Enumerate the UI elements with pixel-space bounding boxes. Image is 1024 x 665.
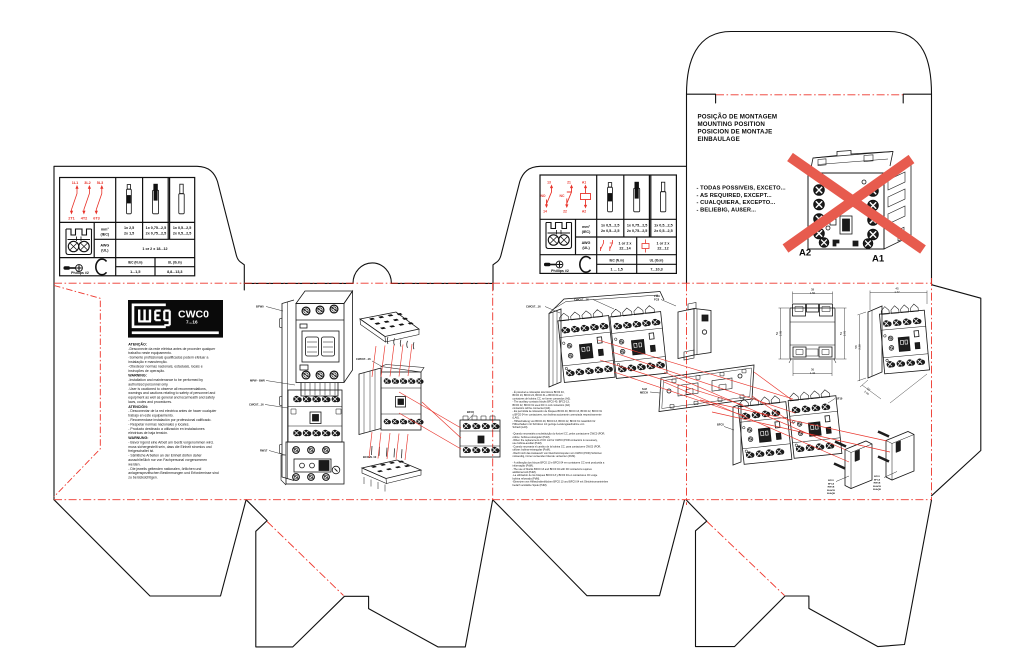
svg-text:5L3: 5L3: [97, 181, 104, 185]
svg-text:EINBAULAGE: EINBAULAGE: [698, 136, 740, 143]
svg-text:- CUALQUIERA, EXCEPTO...: - CUALQUIERA, EXCEPTO...: [697, 200, 776, 206]
svg-text:2x 1,5: 2x 1,5: [124, 232, 134, 236]
svg-text:2x 0,75...2,5: 2x 0,75...2,5: [627, 229, 648, 233]
svg-text:2.05: 2.05: [779, 330, 783, 336]
svg-text:WARNUNG:: WARNUNG:: [128, 436, 148, 440]
svg-text:zu berücksichtigen.: zu berücksichtigen.: [128, 476, 157, 480]
svg-text:2x 0,5...2,5: 2x 0,5...2,5: [601, 229, 619, 233]
svg-text:-Desconecte da rede elétrica a: -Desconecte da rede elétrica antes de pr…: [128, 347, 216, 351]
svg-text:(IEC): (IEC): [100, 233, 109, 237]
svg-text:instruções de operação.: instruções de operação.: [128, 369, 165, 373]
svg-text:- Bevor irgend eine Arbeit am: - Bevor irgend eine Arbeit am Gerät vorg…: [128, 440, 213, 444]
svg-text:1x 0,5...2,5: 1x 0,5...2,5: [601, 224, 619, 228]
svg-text:WARNING:: WARNING:: [128, 374, 147, 378]
svg-text:21: 21: [567, 181, 571, 185]
svg-text:ATENCIÓN:: ATENCIÓN:: [128, 404, 148, 409]
svg-text:IEC (N.m): IEC (N.m): [610, 259, 624, 263]
svg-text:51: 51: [839, 332, 843, 336]
svg-text:6T3: 6T3: [93, 216, 100, 220]
svg-text:BFC0: BFC0: [828, 480, 834, 482]
svg-text:3L2: 3L2: [84, 181, 91, 185]
svg-text:- Die jeweils geltenden nation: - Die jeweils geltenden nationalen, örtl…: [128, 467, 201, 471]
svg-text:POSICION DE MONTAJE: POSICION DE MONTAJE: [698, 129, 773, 136]
svg-text:CWC07...16: CWC07...16: [526, 305, 541, 309]
svg-text:werden.: werden.: [128, 462, 140, 466]
svg-text:- Sämtliche Arbeiten an der Ei: - Sämtliche Arbeiten an der Einheit dürf…: [128, 454, 202, 458]
svg-text:1 or 2 x 18...12: 1 or 2 x 18...12: [142, 247, 167, 251]
svg-text:(UL): (UL): [582, 246, 590, 250]
svg-text:A1: A1: [872, 254, 885, 265]
svg-text:POSIÇÃO DE MONTAGEM: POSIÇÃO DE MONTAGEM: [698, 114, 778, 121]
svg-text:BFCA: BFCA: [874, 478, 880, 481]
svg-text:(IEC): (IEC): [582, 230, 591, 234]
svg-text:45: 45: [895, 287, 899, 291]
svg-text:trabajo en este equipamiento.: trabajo en este equipamiento.: [128, 414, 173, 418]
svg-text:-Installation and maintenance: -Installation and maintenance to be perf…: [128, 378, 203, 382]
svg-text:1x 0,5...2,5: 1x 0,5...2,5: [173, 226, 191, 230]
svg-text:- TODAS POSSIVEIS, EXCETO...: - TODAS POSSIVEIS, EXCETO...: [697, 186, 787, 192]
svg-text:-Somente profissionais qualifi: -Somente profissionais qualificados pode…: [128, 356, 208, 360]
svg-text:Schadt (LA0).: Schadt (LA0).: [513, 425, 529, 429]
svg-text:laws, codes and procedures.: laws, codes and procedures.: [128, 400, 172, 404]
svg-text:1.77: 1.77: [894, 290, 900, 294]
svg-text:RW17: RW17: [260, 449, 268, 453]
svg-text:UL (lb.in): UL (lb.in): [168, 261, 182, 265]
svg-text:2.01: 2.01: [843, 330, 847, 336]
svg-text:authorized personnel only.: authorized personnel only.: [128, 382, 168, 386]
svg-text:1x 0,5...2,5: 1x 0,5...2,5: [654, 224, 672, 228]
svg-text:1.50: 1.50: [810, 291, 816, 295]
svg-text:CWC07...16: CWC07...16: [574, 298, 589, 302]
svg-text:1 ... 1,5: 1 ... 1,5: [611, 268, 623, 272]
svg-text:NC: NC: [560, 194, 565, 198]
svg-text:1x 0,75...2,5: 1x 0,75...2,5: [627, 224, 648, 228]
svg-text:MPW - BW0: MPW - BW0: [250, 379, 265, 383]
svg-text:1 or 2 x: 1 or 2 x: [619, 242, 633, 246]
svg-text:22...12: 22...12: [657, 247, 668, 251]
svg-text:mm²: mm²: [101, 228, 110, 232]
svg-text:-User is cautioned to observe: -User is cautioned to observe all recomm…: [128, 387, 206, 391]
svg-text:BFW0: BFW0: [256, 305, 264, 309]
svg-text:Phillips #2: Phillips #2: [551, 269, 569, 273]
svg-text:NO: NO: [540, 194, 545, 198]
svg-text:BFC0: BFC0: [874, 476, 880, 478]
svg-text:FWA: FWA: [654, 294, 660, 298]
svg-text:58: 58: [854, 345, 858, 349]
svg-text:14: 14: [543, 210, 547, 214]
svg-text:4T2: 4T2: [81, 216, 88, 220]
svg-text:BLACB: BLACB: [873, 485, 881, 488]
svg-text:- BELIEBIG, AUßER...: - BELIEBIG, AUßER...: [697, 207, 757, 213]
svg-text:anlagenspezifischen Bestimmung: anlagenspezifischen Bestimmungen und Erf…: [128, 471, 218, 475]
svg-text:CWC07...16: CWC07...16: [356, 357, 371, 361]
svg-text:2x 0,75...2,5: 2x 0,75...2,5: [146, 232, 167, 236]
svg-text:- AS REQUIRED, EXCEPT...: - AS REQUIRED, EXCEPT...: [697, 193, 773, 199]
svg-text:1...1,5: 1...1,5: [130, 270, 140, 274]
svg-text:2x 0,5...2,5: 2x 0,5...2,5: [654, 229, 672, 233]
svg-text:instalação e manutenção.: instalação e manutenção.: [128, 360, 167, 364]
svg-text:ATENÇÃO:: ATENÇÃO:: [128, 341, 147, 346]
svg-text:2.28: 2.28: [858, 344, 862, 350]
svg-text:- Producto destinado a utiliza: - Producto destinado a utilización en in…: [128, 427, 205, 431]
svg-text:FC8: FC8: [654, 298, 660, 302]
svg-text:AWG: AWG: [582, 241, 591, 245]
svg-text:BFC0: BFC0: [467, 410, 475, 414]
svg-text:52: 52: [775, 332, 779, 336]
svg-text:y BFC0 04 en contactores, son: y BFC0 04 en contactores, son bobina acc…: [513, 412, 603, 416]
svg-text:notwendig, immer verwenden fol: notwendig, immer verwenden folende: antw…: [513, 454, 577, 458]
svg-text:BLACB: BLACB: [827, 489, 835, 492]
svg-text:eléctricas de baja tensión.: eléctricas de baja tensión.: [128, 431, 168, 435]
svg-text:A1: A1: [582, 181, 586, 185]
svg-text:1.42: 1.42: [810, 371, 816, 375]
svg-text:muss sichergestellt sein, dass: muss sichergestellt sein, dass die Einhe…: [128, 445, 211, 449]
svg-text:22: 22: [563, 210, 567, 214]
svg-text:7...16: 7...16: [186, 320, 198, 325]
svg-text:Phillips #2: Phillips #2: [71, 271, 89, 275]
svg-text:22...14: 22...14: [619, 247, 631, 251]
svg-text:7...10,3: 7...10,3: [650, 268, 662, 272]
svg-text:36: 36: [811, 368, 815, 372]
svg-text:AWG: AWG: [100, 244, 109, 248]
svg-text:8,8...13,3: 8,8...13,3: [167, 270, 182, 274]
svg-text:equipment as well as general a: equipment as well as general and local h…: [128, 396, 215, 400]
svg-text:trabalho neste equipamento.: trabalho neste equipamento.: [128, 351, 172, 355]
svg-text:BCXML 10: BCXML 10: [363, 455, 377, 459]
svg-text:2T1: 2T1: [68, 216, 75, 220]
svg-text:BFC0: BFC0: [717, 423, 724, 427]
svg-text:RWCB: RWCB: [828, 487, 835, 489]
svg-text:13: 13: [547, 181, 551, 185]
svg-text:MECH: MECH: [640, 391, 648, 395]
svg-text:1x 2,5: 1x 2,5: [124, 226, 134, 230]
svg-text:1x 0,75...2,5: 1x 0,75...2,5: [146, 226, 167, 230]
svg-text:BF10: BF10: [836, 397, 843, 401]
svg-text:BLAQB: BLAQB: [873, 488, 881, 491]
svg-text:RWCB: RWCB: [874, 483, 881, 485]
svg-text:warnings and cautions relating: warnings and cautions relating to safety…: [128, 391, 215, 395]
svg-text:bedarf verstärkte Spule (PdM).: bedarf verstärkte Spule (PdM).: [513, 483, 548, 487]
svg-text:A2: A2: [582, 210, 586, 214]
svg-text:(UL): (UL): [101, 249, 109, 253]
svg-text:ausschließlich nur von Fachper: ausschließlich nur von Fachpersonal vorg…: [128, 458, 207, 462]
svg-text:S.M: S.M: [642, 387, 648, 391]
svg-text:MOUNTING POSITION: MOUNTING POSITION: [698, 121, 766, 128]
svg-text:CWC07...16: CWC07...16: [249, 403, 264, 407]
svg-text:mm²: mm²: [582, 225, 591, 229]
svg-text:-Obedecer normas nacionais, es: -Obedecer normas nacionais, estaduais, l…: [128, 364, 202, 368]
svg-text:- Respetar normas nacionales y: - Respetar normas nacionales y locales.: [128, 422, 189, 426]
svg-text:BLAQB: BLAQB: [827, 492, 835, 495]
svg-text:1L1: 1L1: [72, 181, 79, 185]
svg-text:1 or 2 x: 1 or 2 x: [657, 242, 671, 246]
svg-text:- Recomendase instalación por: - Recomendase instalación por profession…: [128, 418, 211, 422]
svg-text:freigeschaltet ist.: freigeschaltet ist.: [128, 449, 154, 453]
svg-text:UL (lb.in): UL (lb.in): [650, 259, 664, 263]
svg-text:38: 38: [811, 288, 815, 292]
svg-text:IEC (N.m): IEC (N.m): [128, 261, 142, 265]
svg-text:- Desconectar de la red electr: - Desconectar de la red electrica antes …: [128, 409, 217, 413]
svg-text:BFCA: BFCA: [828, 482, 834, 485]
svg-text:2x 0,5...2,5: 2x 0,5...2,5: [173, 232, 191, 236]
